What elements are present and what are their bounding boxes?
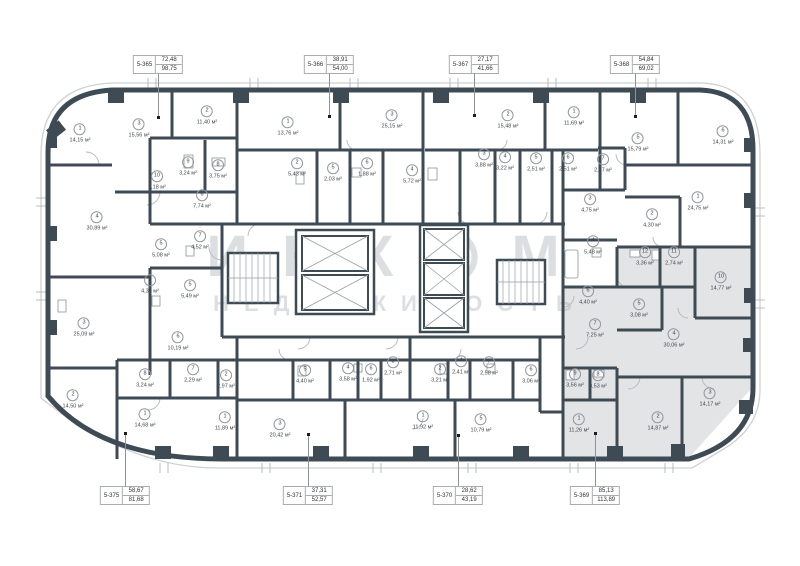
room-number: 7 (194, 230, 206, 242)
room-number: 4 (144, 274, 156, 286)
room-label: 72,37 м² (594, 153, 612, 173)
room-number: 1 (219, 411, 231, 423)
room-number: 7 (597, 153, 609, 165)
room-number: 6 (717, 125, 729, 137)
room-area: 3,22 м² (496, 165, 514, 171)
room-number: 3 (133, 118, 145, 130)
room-number: 4 (587, 235, 599, 247)
room-label: 515,79 м² (628, 132, 649, 152)
apartment-area-value: 113,89 (593, 495, 619, 504)
room-label: 610,19 м² (168, 331, 189, 351)
room-label: 22,97 м² (217, 369, 235, 389)
room-number: 7 (589, 318, 601, 330)
room-label: 325,15 м² (382, 109, 403, 129)
room-area: 14,17 м² (700, 401, 721, 407)
room-number: 9 (569, 368, 581, 380)
room-label: 45,72 м² (403, 164, 421, 184)
room-area: 20,42 м² (270, 432, 291, 438)
callout-leader-line (329, 73, 330, 115)
apartment-callout[interactable]: 5-37558,6781,68 (100, 486, 150, 505)
apartment-callout[interactable]: 5-36727,1741,66 (449, 55, 499, 74)
room-label: 211,40 м² (197, 105, 218, 125)
apartment-id: 5-368 (611, 56, 633, 73)
room-number: 2 (291, 157, 303, 169)
room-area: 14,50 м² (63, 403, 84, 409)
room-label: 215,48 м² (498, 109, 519, 129)
apartment-id: 5-365 (134, 56, 156, 73)
room-number: 5 (633, 298, 645, 310)
apartment-area-value: 28,62 (456, 487, 482, 495)
room-number: 4 (406, 164, 418, 176)
room-area: 5,49 м² (181, 293, 199, 299)
apartment-areas: 85,13113,89 (593, 487, 619, 504)
room-area: 7,74 м² (193, 203, 211, 209)
apartment-area-value: 72,48 (156, 56, 182, 64)
room-label: 315,56 м² (129, 118, 150, 138)
apartment-area-value: 85,13 (593, 487, 619, 495)
room-number: 8 (212, 159, 224, 171)
room-label: 33,88 м² (475, 148, 493, 168)
room-area: 1,92 м² (362, 377, 380, 383)
room-area: 3,24 м² (179, 170, 197, 176)
room-number: 9 (182, 156, 194, 168)
staircase-left (228, 253, 278, 303)
apartment-area-value: 81,68 (123, 495, 149, 504)
room-number: 6 (525, 364, 537, 376)
apartment-id: 5-370 (434, 487, 456, 504)
room-label: 124,75 м² (688, 191, 709, 211)
apartment-areas: 72,4898,75 (156, 56, 182, 73)
room-label: 77,25 м² (586, 318, 604, 338)
room-number: 5 (475, 413, 487, 425)
room-area: 2,58 м² (480, 370, 498, 376)
callout-anchor-dot (473, 114, 476, 117)
room-number: 6 (562, 152, 574, 164)
room-area: 2,03 м² (324, 176, 342, 182)
room-number: 5 (327, 162, 339, 174)
room-label: 72,29 м² (184, 363, 202, 383)
room-label: 61,88 м² (358, 157, 376, 177)
room-label: 111,89 м² (215, 411, 236, 431)
callout-leader-line (158, 73, 159, 116)
room-number: 6 (365, 363, 377, 375)
room-label: 614,31 м² (713, 125, 734, 145)
room-area: 1,18 м² (148, 184, 166, 190)
room-area: 15,79 м² (628, 146, 649, 152)
room-number: 1 (74, 123, 86, 135)
room-number: 3 (386, 109, 398, 121)
room-area: 14,31 м² (713, 139, 734, 145)
apartment-areas: 37,3152,57 (306, 487, 332, 504)
room-label: 314,17 м² (700, 387, 721, 407)
room-area: 7,25 м² (586, 332, 604, 338)
apartment-area-value: 41,66 (472, 64, 498, 73)
room-number: 10 (151, 170, 163, 182)
room-area: 11,69 м² (564, 120, 585, 126)
room-number: 6 (196, 189, 208, 201)
room-area: 2,41 м² (452, 369, 470, 375)
room-label: 101,18 м² (148, 170, 166, 190)
room-area: 14,77 м² (711, 285, 732, 291)
apartment-areas: 28,6243,19 (456, 487, 482, 504)
apartment-area-value: 43,19 (456, 495, 482, 504)
room-area: 13,76 м² (278, 130, 299, 136)
callout-anchor-dot (594, 432, 597, 435)
room-number: 2 (220, 369, 232, 381)
elevator-core (228, 225, 545, 332)
room-label: 55,08 м² (152, 238, 170, 258)
room-area: 30,06 м² (664, 342, 685, 348)
apartment-areas: 54,8469,02 (633, 56, 659, 73)
room-number: 1 (139, 408, 151, 420)
room-area: 11,92 м² (413, 424, 434, 430)
room-number: 3 (387, 356, 399, 368)
room-label: 64,40 м² (579, 285, 597, 305)
room-label: 320,42 м² (270, 418, 291, 438)
room-area: 14,68 м² (135, 422, 156, 428)
room-label: 24,30 м² (643, 208, 661, 228)
apartment-area-value: 54,00 (327, 64, 353, 73)
room-label: 74,52 м² (191, 230, 209, 250)
room-number: 7 (187, 363, 199, 375)
room-label: 430,89 м² (87, 211, 108, 231)
room-label: 61,92 м² (362, 363, 380, 383)
room-label: 55,49 м² (181, 279, 199, 299)
apartment-callout[interactable]: 5-36638,9154,00 (304, 55, 354, 74)
apartment-id: 5-371 (284, 487, 306, 504)
callout-anchor-dot (457, 434, 460, 437)
room-label: 93,56 м² (566, 368, 584, 388)
room-number: 1 (573, 413, 585, 425)
room-number: 5 (184, 279, 196, 291)
room-number: 4 (499, 151, 511, 163)
room-area: 11,89 м² (215, 425, 236, 431)
room-area: 5,72 м² (403, 178, 421, 184)
room-label: 430,06 м² (664, 328, 685, 348)
room-area: 3,56 м² (566, 382, 584, 388)
room-label: 43,58 м² (339, 362, 357, 382)
room-number: 1 (282, 116, 294, 128)
room-area: 1,88 м² (358, 171, 376, 177)
room-label: 510,79 м² (471, 413, 492, 433)
room-label: 72,58 м² (480, 356, 498, 376)
room-area: 11,26 м² (569, 427, 590, 433)
callout-anchor-dot (124, 432, 127, 435)
callout-leader-line (595, 435, 596, 486)
room-area: 30,89 м² (87, 225, 108, 231)
room-area: 15,48 м² (498, 123, 519, 129)
room-label: 83,24 м² (136, 368, 154, 388)
apartment-id: 5-375 (101, 487, 123, 504)
room-label: 54,40 м² (296, 364, 314, 384)
apartment-area-value: 37,31 (306, 487, 332, 495)
room-number: 2 (201, 105, 213, 117)
room-area: 14,15 м² (70, 137, 91, 143)
room-area: 2,51 м² (527, 166, 545, 172)
apartment-id: 5-369 (571, 487, 593, 504)
apartment-callout[interactable]: 5-37028,6243,19 (433, 486, 483, 505)
room-area: 4,30 м² (141, 288, 159, 294)
room-number: 4 (668, 328, 680, 340)
staircase-right (497, 260, 545, 304)
apartment-area-value: 27,17 (472, 56, 498, 64)
room-number: 6 (361, 157, 373, 169)
room-area: 3,08 м² (630, 312, 648, 318)
room-area: 4,40 м² (296, 378, 314, 384)
room-number: 1 (568, 106, 580, 118)
room-area: 2,97 м² (217, 383, 235, 389)
room-area: 10,19 м² (168, 345, 189, 351)
room-label: 1014,77 м² (711, 271, 732, 291)
room-area: 2,74 м² (665, 260, 683, 266)
apartment-callout[interactable]: 5-36572,4898,75 (133, 55, 183, 74)
room-number: 12 (639, 246, 651, 258)
room-label: 25,43 м² (288, 157, 306, 177)
room-number: 10 (715, 271, 727, 283)
room-area: 3,58 м² (339, 376, 357, 382)
room-area: 25,15 м² (382, 123, 403, 129)
room-label: 113,76 м² (278, 116, 299, 136)
room-label: 114,68 м² (135, 408, 156, 428)
room-number: 8 (139, 368, 151, 380)
room-label: 42,41 м² (452, 355, 470, 375)
room-number: 5 (155, 238, 167, 250)
room-area: 15,56 м² (129, 132, 150, 138)
room-area: 2,71 м² (384, 370, 402, 376)
room-area: 3,24 м² (136, 382, 154, 388)
room-number: 2 (646, 208, 658, 220)
room-number: 4 (91, 211, 103, 223)
callout-anchor-dot (328, 115, 331, 118)
room-number: 5 (299, 364, 311, 376)
room-label: 214,87 м² (648, 411, 669, 431)
room-area: 2,37 м² (594, 167, 612, 173)
room-label: 67,74 м² (193, 189, 211, 209)
room-number: 11 (668, 246, 680, 258)
room-number: 3 (704, 387, 716, 399)
room-label: 83,75 м² (209, 159, 227, 179)
callout-leader-line (635, 73, 636, 115)
room-label: 111,69 м² (564, 106, 585, 126)
callout-leader-line (474, 73, 475, 114)
room-area: 3,53 м² (589, 383, 607, 389)
room-label: 111,92 м² (413, 410, 434, 430)
room-area: 3,21 м² (431, 377, 449, 383)
room-label: 62,51 м² (559, 152, 577, 172)
apartment-id: 5-367 (450, 56, 472, 73)
room-area: 2,29 м² (184, 377, 202, 383)
room-number: 2 (67, 389, 79, 401)
callout-leader-line (458, 437, 459, 486)
room-area: 3,88 м² (475, 162, 493, 168)
room-label: 63,06 м² (522, 364, 540, 384)
room-number: 8 (592, 369, 604, 381)
room-number: 4 (455, 355, 467, 367)
apartment-areas: 58,6781,68 (123, 487, 149, 504)
room-label: 114,15 м² (70, 123, 91, 143)
room-label: 23,21 м² (431, 363, 449, 383)
room-area: 4,75 м² (581, 207, 599, 213)
room-number: 4 (342, 362, 354, 374)
apartment-id: 5-366 (305, 56, 327, 73)
apartment-area-value: 58,67 (123, 487, 149, 495)
apartment-area-value: 38,91 (327, 56, 353, 64)
apartment-callout[interactable]: 5-37137,3152,57 (283, 486, 333, 505)
room-area: 5,43 м² (288, 171, 306, 177)
room-label: 52,51 м² (527, 152, 545, 172)
room-area: 3,06 м² (522, 378, 540, 384)
callout-anchor-dot (157, 116, 160, 119)
room-label: 112,74 м² (665, 246, 683, 266)
room-label: 93,24 м² (179, 156, 197, 176)
building-floorplan: ИНКМ НЕДВИЖИМОСТЬ (0, 0, 800, 566)
room-label: 83,53 м² (589, 369, 607, 389)
room-label: 325,09 м² (74, 317, 95, 337)
room-label: 214,50 м² (63, 389, 84, 409)
room-area: 25,09 м² (74, 331, 95, 337)
apartment-callout[interactable]: 5-36985,13113,89 (570, 486, 620, 505)
room-area: 4,40 м² (579, 299, 597, 305)
apartment-area-value: 52,57 (306, 495, 332, 504)
apartment-areas: 27,1741,66 (472, 56, 498, 73)
room-number: 1 (692, 191, 704, 203)
apartment-area-value: 69,02 (633, 64, 659, 73)
room-number: 3 (274, 418, 286, 430)
apartment-callout[interactable]: 5-36854,8469,02 (610, 55, 660, 74)
callout-leader-line (308, 436, 309, 486)
apartment-areas: 38,9154,00 (327, 56, 353, 73)
room-area: 11,40 м² (197, 119, 218, 125)
room-area: 14,87 м² (648, 425, 669, 431)
callout-anchor-dot (307, 433, 310, 436)
room-label: 52,03 м² (324, 162, 342, 182)
room-area: 3,36 м² (636, 260, 654, 266)
room-label: 111,26 м² (569, 413, 590, 433)
room-label: 32,71 м² (384, 356, 402, 376)
room-number: 2 (434, 363, 446, 375)
room-number: 5 (632, 132, 644, 144)
callout-leader-line (125, 435, 126, 486)
room-area: 10,79 м² (471, 427, 492, 433)
apartment-area-value: 54,84 (633, 56, 659, 64)
room-number: 7 (483, 356, 495, 368)
room-area: 5,08 м² (152, 252, 170, 258)
apartment-area-value: 98,75 (156, 64, 182, 73)
room-label: 43,22 м² (496, 151, 514, 171)
room-number: 3 (584, 193, 596, 205)
room-area: 5,48 м² (584, 249, 602, 255)
callout-anchor-dot (634, 115, 637, 118)
room-label: 44,30 м² (141, 274, 159, 294)
room-number: 6 (172, 331, 184, 343)
room-number: 2 (652, 411, 664, 423)
room-number: 6 (582, 285, 594, 297)
room-label: 34,75 м² (581, 193, 599, 213)
room-area: 3,75 м² (209, 173, 227, 179)
room-area: 24,75 м² (688, 205, 709, 211)
room-area: 4,52 м² (191, 244, 209, 250)
room-number: 3 (478, 148, 490, 160)
room-number: 1 (417, 410, 429, 422)
room-label: 45,48 м² (584, 235, 602, 255)
room-number: 3 (78, 317, 90, 329)
room-area: 4,30 м² (643, 222, 661, 228)
room-label: 123,36 м² (636, 246, 654, 266)
floorplan-drawing (0, 0, 800, 566)
room-area: 2,51 м² (559, 166, 577, 172)
room-number: 2 (502, 109, 514, 121)
room-label: 53,08 м² (630, 298, 648, 318)
room-number: 5 (530, 152, 542, 164)
